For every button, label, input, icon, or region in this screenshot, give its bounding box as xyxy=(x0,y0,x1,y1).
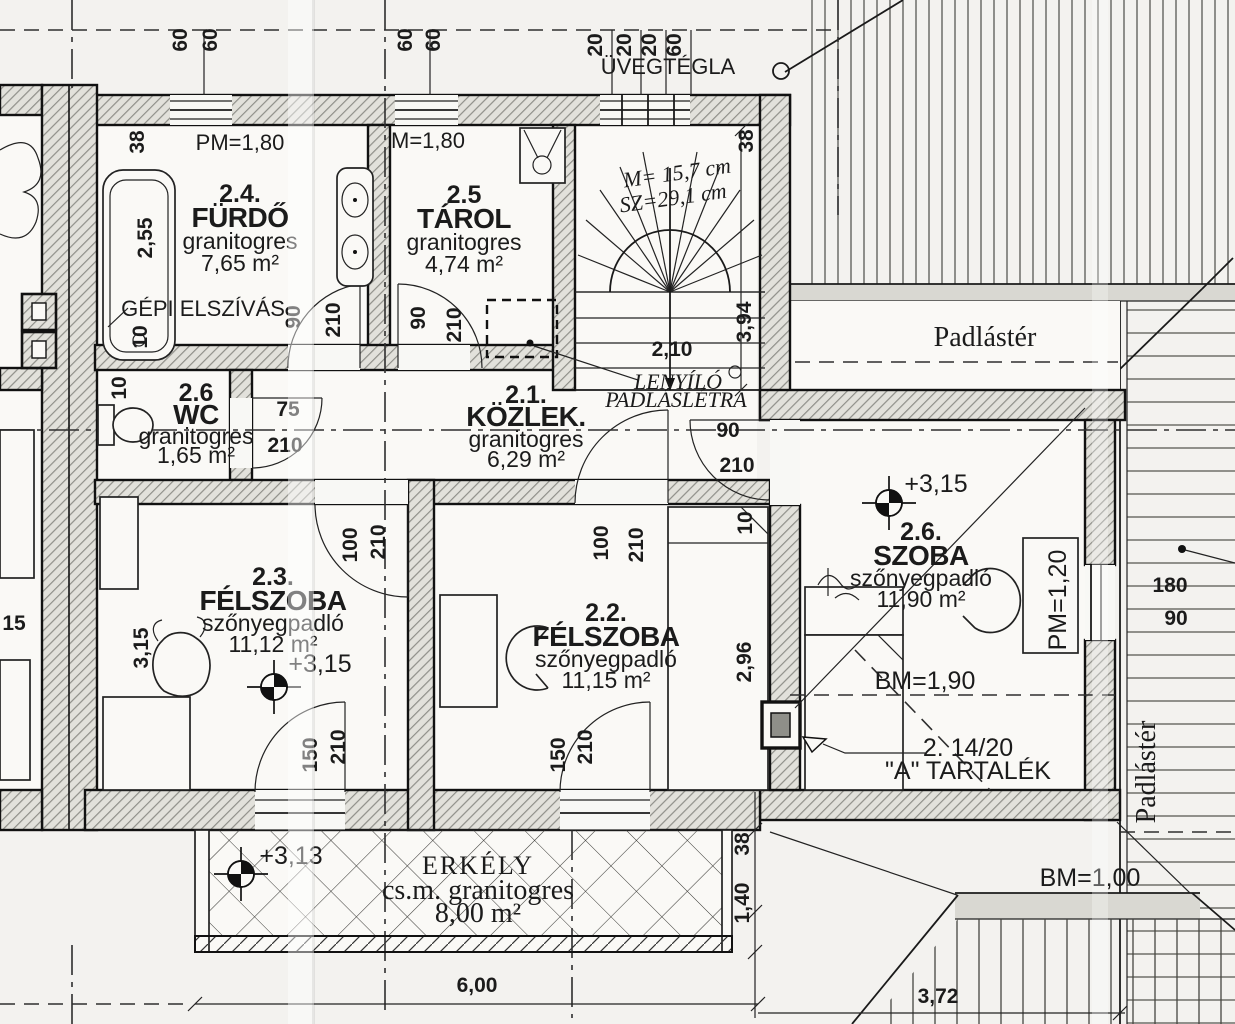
attic-label: Padlástér xyxy=(934,322,1037,353)
dimension-label: 15 xyxy=(2,612,26,635)
svg-text:1,65 m²: 1,65 m² xyxy=(157,442,235,468)
balcony-side-wall xyxy=(195,830,209,952)
dimension-label: 3,94 xyxy=(733,301,756,342)
dimension-label: 10 xyxy=(734,511,757,534)
dimension-label: 38 xyxy=(731,832,754,856)
chimney-block xyxy=(762,702,800,748)
dimension-label: 6,00 xyxy=(457,974,498,997)
cabinet-felszoba-mid xyxy=(440,595,497,707)
roof-window-point xyxy=(1178,545,1186,553)
dimension-label: 20 xyxy=(584,33,607,56)
dimension-label: 180 xyxy=(1152,574,1187,597)
dimension-label: 10 xyxy=(129,325,152,348)
bed-felszoba-left xyxy=(103,697,190,790)
dimension-label: 60 xyxy=(422,28,445,51)
dimension-label: 60 xyxy=(663,33,686,56)
window-opening xyxy=(395,95,458,125)
bm-height-label: BM=1,90 xyxy=(875,667,976,695)
wash-basin xyxy=(520,128,565,183)
dimension-label: 150 xyxy=(547,737,570,772)
pm-height-label: PM=1,80 xyxy=(196,130,285,155)
svg-text:11,90 m²: 11,90 m² xyxy=(876,586,965,612)
window-opening xyxy=(170,95,232,125)
dimension-label: 20 xyxy=(613,33,636,56)
roof-top-right xyxy=(773,0,1235,301)
dimension-label: 10 xyxy=(108,376,131,399)
dimension-label: 210 xyxy=(574,729,597,764)
dimension-label: 38 xyxy=(126,130,149,154)
dimension-label: 2,55 xyxy=(134,217,157,258)
dimension-label: 3,15 xyxy=(130,627,153,668)
dimension-label: 90 xyxy=(716,419,739,442)
dimension-label: 100 xyxy=(590,525,613,560)
svg-text:11,15 m²: 11,15 m² xyxy=(561,667,650,693)
tartalek-label: "A" TARTALÉK xyxy=(885,756,1051,785)
dimension-label: 2,96 xyxy=(733,642,756,683)
dimension-label: 2,10 xyxy=(652,338,693,361)
dimension-label: 20 xyxy=(638,33,661,56)
dimension-label: 1,40 xyxy=(731,883,754,924)
attic-label: Padlástér xyxy=(1131,720,1162,823)
dimension-label: 210 xyxy=(367,524,390,559)
wardrobe xyxy=(100,497,138,589)
gepi-elszivas-label: GÉPI ELSZÍVÁS xyxy=(121,296,285,321)
dimension-label: 210 xyxy=(625,527,648,562)
svg-text:6,29 m²: 6,29 m² xyxy=(487,446,565,472)
dimension-label: 60 xyxy=(169,28,192,51)
dimension-label: 210 xyxy=(322,302,345,337)
svg-text:4,74 m²: 4,74 m² xyxy=(425,251,503,277)
dimension-label: 100 xyxy=(339,527,362,562)
double-sink xyxy=(337,168,373,286)
level-value: +3,15 xyxy=(904,470,967,498)
neighbor-chimney xyxy=(22,294,56,368)
pm-height-label: M=1,80 xyxy=(391,128,465,153)
dimension-label: 210 xyxy=(443,307,466,342)
dimension-label: 60 xyxy=(394,28,417,51)
dimension-label: 210 xyxy=(327,729,350,764)
loft-ladder-label: PADLÁSLÉTRA xyxy=(604,387,747,412)
dimension-label: 90 xyxy=(1164,607,1187,630)
svg-text:7,65 m²: 7,65 m² xyxy=(201,250,279,276)
uvegtegla-label: ÜVEGTÉGLA xyxy=(601,54,736,79)
balcony-railing xyxy=(195,936,732,952)
dimension-label: 60 xyxy=(199,28,222,51)
dimension-label: 3,72 xyxy=(918,985,959,1008)
floor-plan: 2.4. FÜRDŐ granitogres 7,65 m² 2.5 TÁROL… xyxy=(0,0,1235,1024)
svg-text:8,00 m²: 8,00 m² xyxy=(435,898,521,929)
dimension-label: 210 xyxy=(719,454,754,477)
pm-height-label: PM=1,20 xyxy=(1044,550,1072,651)
bm-height-label: BM=1,00 xyxy=(1040,864,1141,892)
glass-block-opening xyxy=(600,95,690,125)
dimension-label: 38 xyxy=(735,129,758,153)
dimension-label: 90 xyxy=(407,306,430,329)
